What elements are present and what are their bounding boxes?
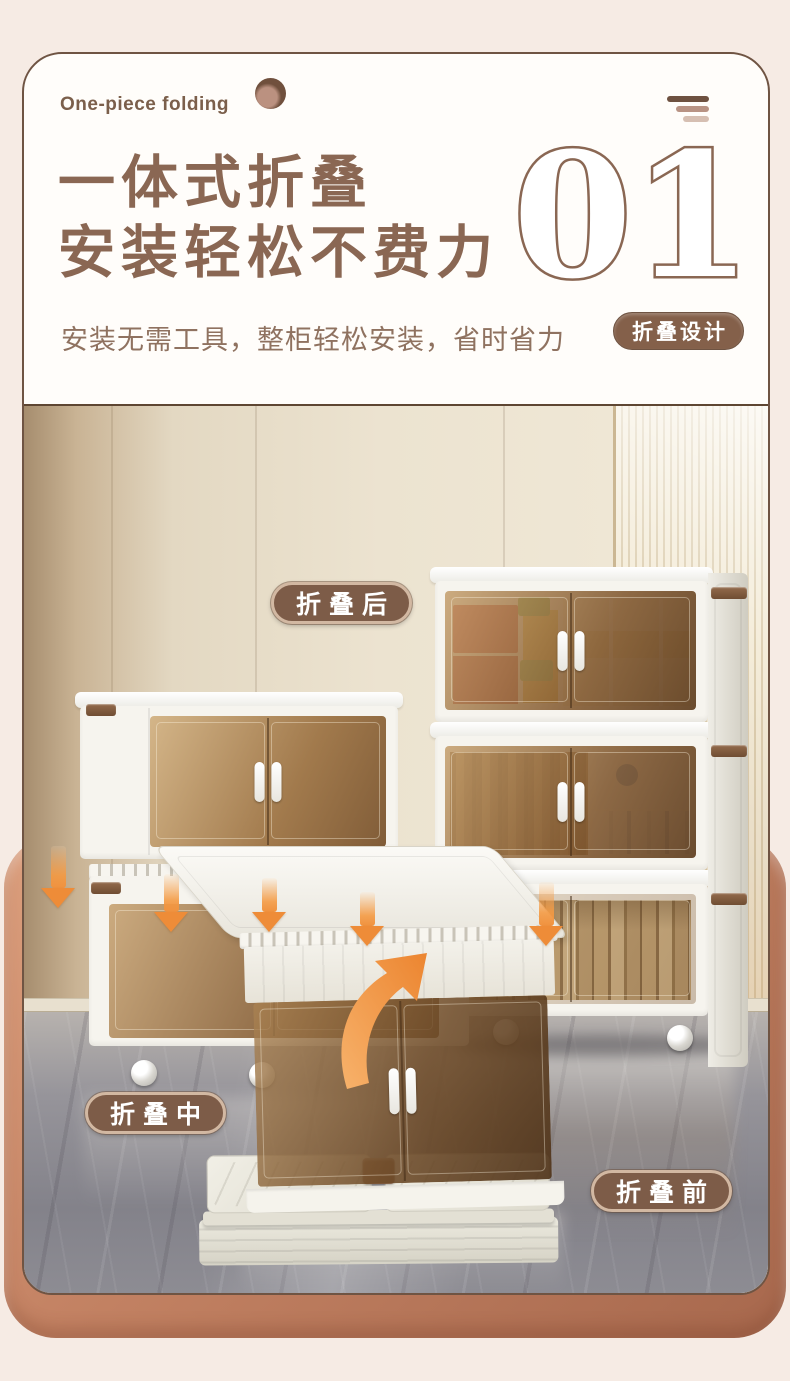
- door-divider: [570, 896, 572, 1002]
- title-line-2: 安装轻松不费力: [58, 218, 499, 288]
- triple-lines-icon: [667, 96, 709, 122]
- title-line-1: 一体式折叠: [58, 148, 499, 218]
- sphere-dot-icon: [255, 78, 286, 109]
- caster-wheel: [667, 1025, 693, 1051]
- side-clip-handle: [86, 704, 116, 716]
- side-clip-handle: [711, 587, 747, 599]
- label-folding-during: 折叠中: [85, 1092, 226, 1134]
- fold-down-arrow-icon: [350, 892, 384, 946]
- side-clip-handle: [711, 893, 747, 905]
- card-header: One-piece folding 一体式折叠 安装轻松不费力 01 安装无需工…: [24, 54, 768, 404]
- section-number: 01: [504, 126, 754, 301]
- svg-text:01: 01: [513, 126, 752, 301]
- cabinet-side-panel: [708, 573, 748, 1067]
- cabinet-door-glass: [445, 591, 696, 710]
- unfold-curve-arrow-icon: [324, 951, 434, 1091]
- door-handles: [557, 782, 584, 822]
- label-folded-before: 折叠前: [591, 1170, 732, 1212]
- section-subtitle: 安装无需工具，整柜轻松安装，省时省力: [61, 318, 565, 357]
- fold-down-arrow-icon: [252, 878, 286, 932]
- cabinet-door-glass: [445, 746, 696, 858]
- feature-card: One-piece folding 一体式折叠 安装轻松不费力 01 安装无需工…: [22, 52, 770, 1295]
- cabinet-door-glass: [150, 716, 386, 847]
- cabinet-tier-snacks: [435, 567, 708, 722]
- fold-down-arrow-icon: [154, 874, 188, 932]
- door-handles: [557, 631, 584, 671]
- eyebrow-text: One-piece folding: [60, 94, 229, 116]
- label-folded-after: 折叠后: [271, 582, 412, 624]
- door-handles: [255, 762, 282, 802]
- fold-design-badge: 折叠设计: [613, 312, 744, 350]
- promo-page: One-piece folding 一体式折叠 安装轻松不费力 01 安装无需工…: [0, 0, 790, 1381]
- fold-down-arrow-icon: [41, 846, 75, 908]
- section-title: 一体式折叠 安装轻松不费力: [58, 148, 499, 288]
- product-photo: 折叠后 折叠中 折叠前: [24, 404, 768, 1293]
- caster-wheel: [131, 1060, 157, 1086]
- side-clip-handle: [91, 882, 121, 894]
- fold-down-arrow-icon: [529, 882, 563, 946]
- assembled-cabinet-left: [80, 692, 398, 859]
- side-clip-handle: [711, 745, 747, 757]
